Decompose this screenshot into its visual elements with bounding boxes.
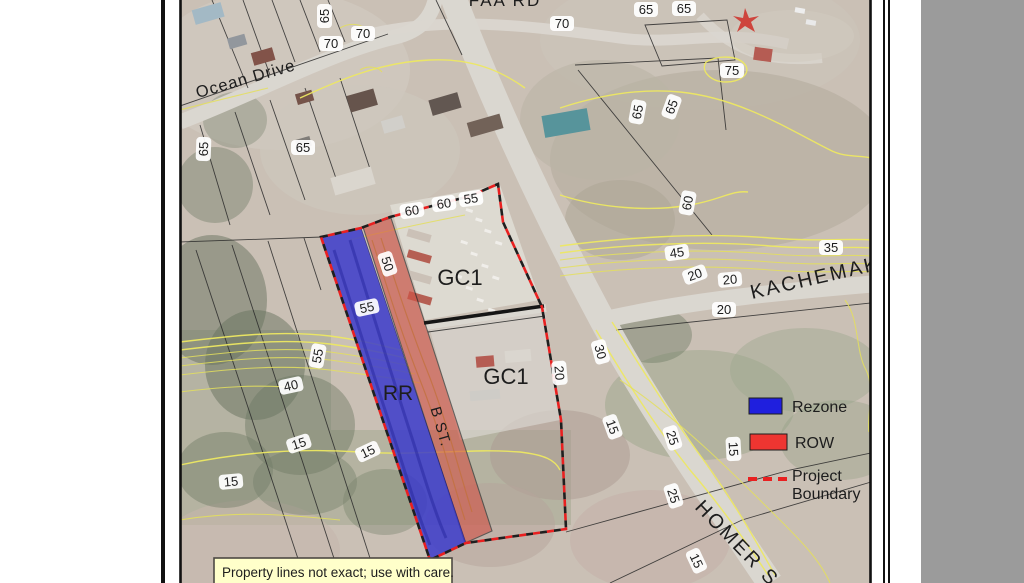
photo-wash [181, 0, 870, 583]
aerial-photo: 65 70 70 70 65 65 75 65 65 60 65 65 60 6… [150, 0, 900, 583]
page-border-right-outer [883, 0, 885, 583]
page-border-right-inner [888, 0, 890, 583]
page-border-left [161, 0, 165, 583]
rezone-map-figure: 65 70 70 70 65 65 75 65 65 60 65 65 60 6… [0, 0, 1024, 583]
document-page: 65 70 70 70 65 65 75 65 65 60 65 65 60 6… [0, 0, 1024, 583]
viewer-backdrop [921, 0, 1024, 583]
